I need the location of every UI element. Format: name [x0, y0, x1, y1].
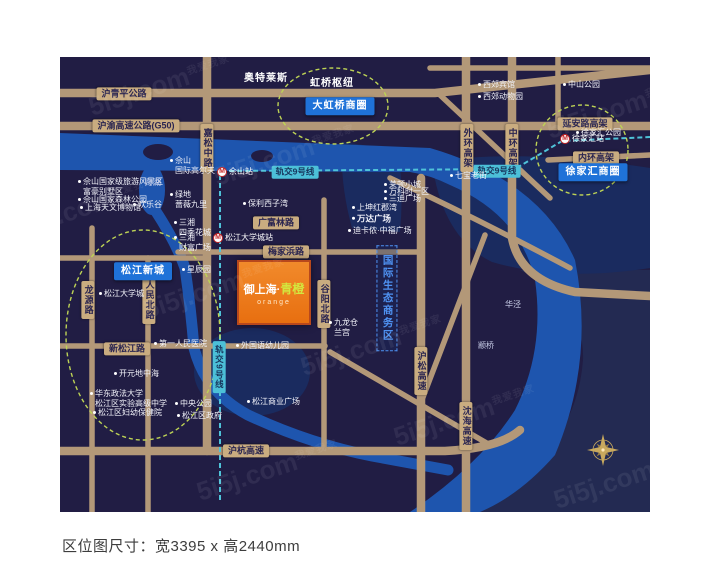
label-text: 上海天文博物馆 — [85, 203, 141, 213]
poi-label: 松江区妇幼保健院 — [93, 408, 162, 418]
label-text: 人民北路 — [145, 280, 155, 320]
label-text: 中山公园 — [568, 80, 600, 90]
label-text: 松江新城 — [121, 265, 165, 276]
label-text: 松江大学城 — [104, 289, 144, 299]
poi-label: 中山公园 — [563, 80, 600, 90]
place-label: 颛桥 — [478, 341, 494, 351]
bullet-dot — [80, 206, 83, 209]
bullet-dot — [243, 202, 246, 205]
metro-icon: M — [213, 233, 223, 243]
bullet-dot — [247, 400, 250, 403]
label-text: 徐家汇商圈 — [566, 166, 621, 177]
bullet-dot — [348, 229, 351, 232]
label-text: 龙源路 — [84, 285, 94, 315]
road-label: 沈海高速 — [459, 402, 472, 450]
poi-label: 中央公园 — [175, 399, 212, 409]
bullet-dot — [329, 321, 332, 324]
bullet-dot — [78, 180, 81, 183]
label-text: 沪松高速 — [417, 351, 427, 391]
label-text: 外环高架 — [463, 128, 473, 168]
label-text: 沪渝高速公路(G50) — [97, 120, 174, 130]
label-text: 中央公园 — [180, 399, 212, 409]
bullet-dot — [170, 159, 173, 162]
bullet-dot — [175, 402, 178, 405]
label-text: 绿地蔷薇九里 — [175, 190, 207, 210]
project-name-prefix: 御上海 — [244, 284, 277, 296]
area-label: 奥特莱斯 — [244, 73, 288, 86]
bullet-dot — [90, 392, 93, 395]
road-label: 沪松高速 — [414, 347, 427, 395]
road-label: 沪杭高速 — [223, 444, 269, 457]
label-text: 松江区妇幼保健院 — [98, 408, 162, 418]
poi-label: 上坤红郡湾 — [352, 203, 397, 213]
poi-label: 九龙仓兰宫 — [329, 318, 358, 338]
bullet-dot — [450, 174, 453, 177]
metro-line-badge: 轨交9号线 — [213, 341, 226, 393]
poi-label: 三湘财富广场 — [174, 233, 211, 253]
road-label: 龙源路 — [81, 281, 94, 319]
poi-label: 西郊宾馆 — [478, 80, 515, 90]
road-label: 人民北路 — [142, 276, 155, 324]
label-text: 轨交9号线 — [214, 345, 224, 389]
bullet-dot — [352, 217, 355, 220]
label-text: 新松江路 — [109, 343, 145, 353]
project-name-accent: 青橙 — [280, 282, 304, 296]
label-text: 华东政法大学松江区实验高级中学 — [95, 389, 167, 409]
label-text: 万达广场 — [357, 214, 391, 225]
district-badge: 徐家汇商圈 — [559, 163, 628, 181]
label-text: 国际生态商务区 — [382, 254, 394, 342]
area-label: 虹桥枢纽 — [310, 78, 354, 91]
label-text: 上坤红郡湾 — [357, 203, 397, 213]
page: 沪青平公路沪渝高速公路(G50)广富林路梅家浜路新松江路沪杭高速延安路高架内环高… — [0, 0, 703, 570]
metro-icon: M — [217, 167, 227, 177]
bullet-dot — [352, 206, 355, 209]
label-text: 梅家浜路 — [268, 246, 304, 256]
label-text: 轨交9号线 — [276, 167, 315, 177]
caption: 区位图尺寸：宽3395 x 高2440mm — [62, 535, 300, 556]
label-text: 沪杭高速 — [228, 445, 264, 455]
poi-label: 上海天文博物馆 — [80, 203, 141, 213]
bullet-dot — [236, 344, 239, 347]
label-text: 佘山国际高尔夫 — [175, 156, 215, 176]
road-label: 沪青平公路 — [96, 87, 151, 100]
poi-label: 迪卡侬·中福广场 — [348, 226, 412, 236]
poi-label: 华东政法大学松江区实验高级中学 — [90, 389, 167, 409]
metro-icon: M — [560, 134, 570, 144]
zone-label: 国际生态商务区 — [376, 245, 397, 351]
road-label: 新松江路 — [104, 342, 150, 355]
bullet-dot — [170, 193, 173, 196]
label-text: 西郊动物园 — [483, 92, 523, 102]
bullet-dot — [99, 292, 102, 295]
poi-label: 万达广场 — [352, 214, 391, 225]
label-text: 三湘财富广场 — [179, 233, 211, 253]
label-text: 迪卡侬·中福广场 — [353, 226, 412, 236]
label-text: 华泾 — [505, 300, 521, 309]
poi-label: 松江商业广场 — [247, 397, 300, 407]
project-name: 御上海·青橙 — [244, 280, 305, 297]
poi-label: 星辰园 — [182, 265, 211, 275]
road-label: 沪渝高速公路(G50) — [92, 119, 179, 132]
poi-label: 松江区政府 — [177, 411, 222, 421]
bullet-dot — [384, 183, 387, 186]
label-text: 开元地中海 — [119, 369, 159, 379]
bullet-dot — [78, 198, 81, 201]
poi-label: 开元地中海 — [114, 369, 159, 379]
label-text: 沈海高速 — [462, 406, 472, 446]
bullet-dot — [114, 372, 117, 375]
label-text: 沪青平公路 — [101, 88, 146, 98]
metro-station: M佘山站 — [217, 167, 253, 177]
road-label: 广富林路 — [253, 216, 299, 229]
label-text: 中环高架 — [508, 128, 518, 168]
bullet-dot — [478, 83, 481, 86]
label-text: 星辰园 — [187, 265, 211, 275]
project-subtitle: orange — [257, 299, 291, 306]
bullet-dot — [154, 342, 157, 345]
bullet-dot — [182, 268, 185, 271]
bullet-dot — [177, 414, 180, 417]
bullet-dot — [384, 190, 387, 193]
watermark: 5i5j.com我爱我家 — [210, 117, 360, 192]
place-label: 月湖 — [145, 178, 161, 188]
poi-label: 西郊动物园 — [478, 92, 523, 102]
label-text: 西郊宾馆 — [483, 80, 515, 90]
label-text: 颛桥 — [478, 341, 494, 350]
label-text: 保利西子湾 — [248, 199, 288, 209]
label-text: 第一人民医院 — [159, 339, 207, 349]
label-text: 虹桥枢纽 — [310, 78, 354, 89]
bullet-dot — [563, 83, 566, 86]
road-label: 梅家浜路 — [263, 245, 309, 258]
map-label-layer: 沪青平公路沪渝高速公路(G50)广富林路梅家浜路新松江路沪杭高速延安路高架内环高… — [60, 57, 650, 512]
bullet-dot — [174, 221, 177, 224]
label-text: 七宝老街 — [455, 171, 487, 181]
district-badge: 松江新城 — [114, 262, 172, 280]
bullet-dot — [174, 236, 177, 239]
metro-station: M松江大学城站 — [213, 233, 273, 243]
label-text: 松江区政府 — [182, 411, 222, 421]
district-badge: 大虹桥商圈 — [306, 97, 375, 115]
place-label: 华泾 — [505, 300, 521, 310]
metro-station-name: 徐家汇站 — [572, 134, 604, 144]
label-text: 奥特莱斯 — [244, 73, 288, 84]
label-text: 月湖 — [145, 178, 161, 187]
poi-label: 七宝老街 — [450, 171, 487, 181]
bullet-dot — [478, 95, 481, 98]
metro-station: M徐家汇站 — [560, 134, 604, 144]
poi-label: 第一人民医院 — [154, 339, 207, 349]
metro-line-badge: 轨交9号线 — [272, 166, 319, 179]
label-text: 内环高架 — [578, 152, 614, 162]
poi-label: 绿地蔷薇九里 — [170, 190, 207, 210]
metro-station-name: 松江大学城站 — [225, 233, 273, 243]
poi-label: 佘山国际高尔夫 — [170, 156, 215, 176]
label-text: 大虹桥商圈 — [313, 100, 368, 111]
road-label: 外环高架 — [460, 124, 473, 172]
poi-label: 外国语幼儿园 — [236, 341, 289, 351]
watermark: 5i5j.com我爱我家 — [550, 440, 650, 512]
label-text: 广富林路 — [258, 217, 294, 227]
project-marker: 御上海·青橙 orange — [237, 260, 311, 325]
label-text: 延安路高架 — [562, 118, 607, 128]
label-text: 松江商业广场 — [252, 397, 300, 407]
poi-label: 松江大学城 — [99, 289, 144, 299]
label-text: 外国语幼儿园 — [241, 341, 289, 351]
bullet-dot — [384, 197, 387, 200]
bullet-dot — [93, 411, 96, 414]
label-text: 九龙仓兰宫 — [334, 318, 358, 338]
poi-label: 保利西子湾 — [243, 199, 288, 209]
location-map: 沪青平公路沪渝高速公路(G50)广富林路梅家浜路新松江路沪杭高速延安路高架内环高… — [60, 57, 650, 512]
metro-station-name: 佘山站 — [229, 167, 253, 177]
